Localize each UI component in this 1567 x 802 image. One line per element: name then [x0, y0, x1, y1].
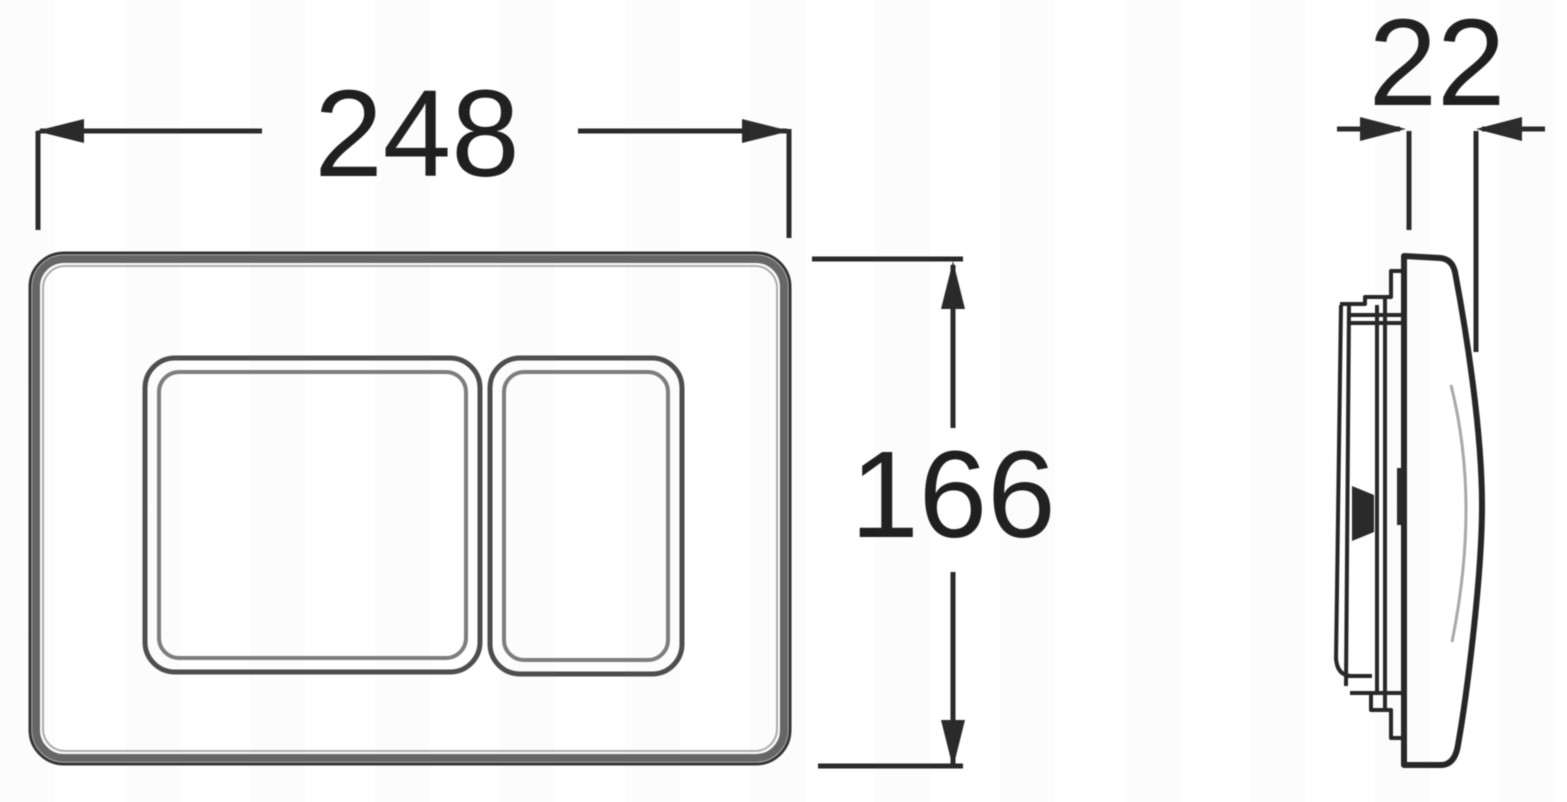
front-view: 248 — [30, 66, 1056, 768]
width-arrow-right-icon — [742, 119, 790, 143]
width-arrow-left-icon — [36, 119, 84, 143]
height-arrow-up-icon — [941, 261, 965, 309]
frame-bottom-left-corner — [1336, 658, 1352, 676]
side-view: 22 — [1336, 0, 1545, 765]
frame-clip — [1352, 486, 1374, 541]
frame-left-edge-outer — [1336, 305, 1341, 660]
height-dim-label: 166 — [850, 427, 1055, 564]
width-dim-label: 248 — [314, 66, 519, 203]
frame-left-edge-inner — [1346, 305, 1349, 686]
flush-button-small — [490, 358, 682, 674]
drawing-svg: 248 — [0, 0, 1567, 802]
depth-dim-label: 22 — [1369, 0, 1506, 132]
plate-side-profile — [1404, 256, 1482, 765]
height-arrow-down-icon — [941, 720, 965, 768]
width-dimension: 248 — [36, 66, 790, 238]
plate-side-outline — [1404, 256, 1482, 765]
flush-button-large — [145, 358, 480, 672]
frame-bottom-step — [1371, 693, 1404, 738]
flush-button-small-inner — [504, 372, 668, 660]
frame-top-edge — [1340, 271, 1404, 304]
height-dimension: 166 — [812, 259, 1056, 768]
flush-button-large-inner — [159, 372, 466, 658]
flush-plate-technical-drawing: 248 — [0, 0, 1567, 802]
